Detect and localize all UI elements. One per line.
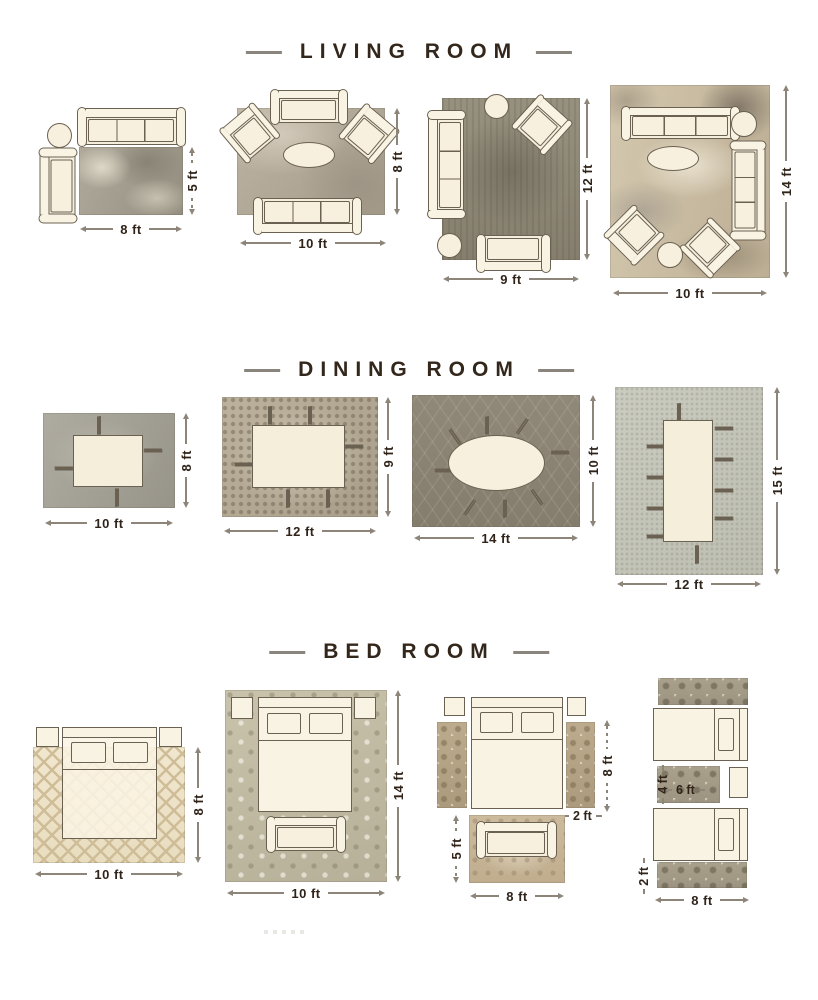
sofa-arm <box>77 107 87 147</box>
sofa-arm <box>730 230 767 240</box>
runner-width-dimension: 2 ft <box>563 809 603 823</box>
loveseat <box>271 90 346 123</box>
chaise <box>40 150 76 223</box>
dim-label: 5 ft <box>449 832 464 866</box>
bench-arm <box>266 816 276 853</box>
height-dimension: 14 ft <box>390 690 406 882</box>
height-dimension: 8 ft <box>190 747 206 863</box>
title-dash <box>269 651 305 654</box>
dining-chair <box>97 487 119 506</box>
loveseat <box>477 235 549 271</box>
dim-label: 10 ft <box>668 286 711 301</box>
bed <box>62 727 157 839</box>
bench-back <box>275 818 336 826</box>
height-dimension: 14 ft <box>778 85 794 278</box>
bed <box>471 697 563 809</box>
dim-label: 12 ft <box>580 158 595 199</box>
dim-label: 10 ft <box>87 867 130 882</box>
dining-table <box>663 420 713 542</box>
runner-height-dimension: 2 ft <box>637 858 651 894</box>
sofa <box>428 112 464 218</box>
runner-rug <box>437 722 467 808</box>
dim-label: 10 ft <box>87 516 130 531</box>
bed-fold-line <box>472 739 562 740</box>
sofa-arm <box>270 89 280 125</box>
side-table-round <box>47 123 72 148</box>
title-dash <box>538 369 574 372</box>
bed-fold-line <box>63 769 156 770</box>
bench-cushion <box>277 827 334 848</box>
pillow <box>113 742 147 763</box>
pillows <box>480 712 554 733</box>
headboard <box>739 709 747 760</box>
pillow <box>521 712 554 733</box>
dim-label: 8 ft <box>113 222 149 237</box>
pillows <box>71 742 147 763</box>
bench <box>267 817 344 851</box>
pillow <box>480 712 513 733</box>
bench-back <box>485 823 547 832</box>
dining-chair <box>714 489 733 511</box>
dining-chair <box>485 417 507 436</box>
sofa-back <box>756 150 764 231</box>
nightstand <box>354 697 376 719</box>
section-title-text: DINING ROOM <box>298 358 520 382</box>
dining-chair <box>677 544 699 563</box>
height-dimension: 5 ft <box>184 147 200 215</box>
sofa <box>78 108 184 145</box>
dining-chair <box>143 449 162 471</box>
dining-chair <box>550 451 569 473</box>
dim-label: 10 ft <box>291 236 334 251</box>
dim-label: 14 ft <box>391 765 406 806</box>
nightstand <box>567 697 586 716</box>
dim-label: 8 ft <box>684 893 720 908</box>
headboard <box>259 698 351 708</box>
dim-label: 12 ft <box>278 524 321 539</box>
dim-label: 8 ft <box>191 788 206 822</box>
sofa-arm <box>621 106 631 141</box>
bench-cushion <box>487 832 545 854</box>
pillows <box>267 713 342 734</box>
section-title-dining-room: DINING ROOM <box>244 358 574 382</box>
width-dimension: 12 ft <box>224 523 376 539</box>
dining-chair <box>485 498 507 517</box>
height-dimension: 8 ft <box>389 108 405 215</box>
dim-label: 6 ft <box>672 783 699 797</box>
bench-arm <box>476 821 486 859</box>
width-dimension: 8 ft <box>80 221 182 237</box>
width-dimension: 10 ft <box>613 285 767 301</box>
pillow <box>309 713 343 734</box>
runner-width-dimension: 8 ft <box>655 892 749 908</box>
width-dimension: 10 ft <box>35 866 183 882</box>
dining-table-oval <box>448 435 545 491</box>
dim-label: 14 ft <box>474 531 517 546</box>
section-title-living-room: LIVING ROOM <box>246 40 572 64</box>
pillow <box>718 818 734 852</box>
dim-label: 2 ft <box>569 809 596 823</box>
width-dimension: 10 ft <box>240 235 386 251</box>
side-table-round <box>437 233 462 258</box>
title-dash <box>513 651 549 654</box>
bed-fold-line <box>259 740 351 741</box>
sofa-cushions <box>50 160 72 213</box>
rug-size-guide: LIVING ROOM DINING ROOM BED ROOM 8 ft 5 … <box>0 0 818 1000</box>
pillow <box>267 713 301 734</box>
width-dimension: 14 ft <box>414 530 578 546</box>
nightstand <box>729 767 748 798</box>
width-dimension: 10 ft <box>227 885 385 901</box>
width-dimension: 12 ft <box>617 576 761 592</box>
dining-chair <box>56 449 75 471</box>
dining-table <box>252 425 345 488</box>
dim-label: 8 ft <box>390 145 405 179</box>
bed-height-dimension: 8 ft <box>599 720 615 812</box>
width-dimension: 10 ft <box>45 515 173 531</box>
dining-chair <box>308 488 330 507</box>
sofa-cushions <box>487 238 539 260</box>
sofa <box>254 198 360 233</box>
bench-arm <box>336 816 346 853</box>
twin-bed <box>653 808 748 861</box>
sofa-back <box>86 109 176 118</box>
dining-chair <box>714 427 733 449</box>
bed-fold-line <box>714 709 715 760</box>
dining-chair <box>308 407 330 426</box>
pillow <box>71 742 105 763</box>
sofa <box>622 107 738 139</box>
dim-label: 8 ft <box>600 749 615 783</box>
dim-label: 15 ft <box>770 460 785 501</box>
headboard <box>739 809 747 860</box>
nightstand <box>444 697 465 716</box>
headboard <box>472 698 562 708</box>
section-title-text: BED ROOM <box>323 640 495 664</box>
dining-chair <box>97 417 119 436</box>
sofa-back <box>262 223 352 232</box>
dim-label: 12 ft <box>667 577 710 592</box>
dim-label: 10 ft <box>284 886 327 901</box>
sofa-back <box>485 261 541 270</box>
headboard <box>63 728 156 738</box>
height-dimension: 8 ft <box>178 413 194 508</box>
dim-label: 9 ft <box>493 272 529 287</box>
title-dash <box>246 51 282 54</box>
sofa-arm <box>730 140 767 150</box>
dim-label: 14 ft <box>779 161 794 202</box>
bench-rug-width-dimension: 8 ft <box>470 888 564 904</box>
height-dimension: 10 ft <box>585 395 601 527</box>
sofa-cushions <box>735 152 756 229</box>
bed <box>258 697 352 812</box>
sofa-back <box>279 91 338 99</box>
dim-label: 5 ft <box>185 164 200 198</box>
runner-rug <box>658 678 748 705</box>
sofa-cushions <box>264 201 350 223</box>
side-table-round <box>484 94 509 119</box>
title-dash <box>244 369 280 372</box>
sofa-cushions <box>88 119 174 142</box>
height-dimension: 12 ft <box>579 98 595 260</box>
dim-label: 8 ft <box>499 889 535 904</box>
coffee-table-oval <box>647 146 699 171</box>
runner-rug <box>566 722 595 808</box>
sofa <box>732 142 766 239</box>
height-dimension: 15 ft <box>769 387 785 575</box>
dining-chair <box>268 488 290 507</box>
dining-chair <box>714 517 733 539</box>
sofa-cushions <box>632 116 728 136</box>
pillow <box>718 718 734 752</box>
bench-arm <box>547 821 557 859</box>
dim-label: 9 ft <box>381 440 396 474</box>
side-table-round <box>731 111 757 137</box>
sofa-arm <box>427 111 466 121</box>
sofa-cushions <box>439 122 461 208</box>
coffee-table-oval <box>283 142 335 168</box>
nightstand <box>159 727 182 747</box>
sofa-arm <box>38 214 77 224</box>
width-dimension: 9 ft <box>443 271 579 287</box>
dining-chair <box>344 445 363 467</box>
runner-rug <box>657 862 747 888</box>
height-dimension: 9 ft <box>380 397 396 517</box>
sofa-back <box>429 120 438 210</box>
bench-rug-height-dimension: 5 ft <box>448 815 464 883</box>
sofa-arm <box>427 210 466 220</box>
sofa-arm <box>38 148 77 158</box>
dining-chair <box>268 407 290 426</box>
nightstand <box>231 697 253 719</box>
faint-watermark <box>264 930 308 934</box>
rug <box>79 147 183 215</box>
dim-label: 8 ft <box>179 444 194 478</box>
sofa-arm <box>476 234 486 273</box>
dining-chair <box>714 458 733 480</box>
twin-bed <box>653 708 748 761</box>
sofa-back <box>41 158 50 215</box>
dim-label: 2 ft <box>637 863 651 890</box>
dining-table <box>73 435 143 487</box>
sofa-back <box>630 108 730 116</box>
sofa-cushions <box>281 100 336 120</box>
nightstand <box>36 727 59 747</box>
sofa-arm <box>253 197 263 235</box>
title-dash <box>536 51 572 54</box>
section-title-text: LIVING ROOM <box>300 40 518 64</box>
side-table-round <box>657 242 683 268</box>
sofa-arm <box>541 234 551 273</box>
sofa-arm <box>352 197 362 235</box>
sofa-arm <box>338 89 348 125</box>
bed-fold-line <box>714 809 715 860</box>
sofa-arm <box>176 107 186 147</box>
section-title-bed-room: BED ROOM <box>269 640 549 664</box>
dim-label: 10 ft <box>586 440 601 481</box>
accent-rug-width-dimension: 6 ft <box>666 783 718 797</box>
bench <box>477 822 555 857</box>
